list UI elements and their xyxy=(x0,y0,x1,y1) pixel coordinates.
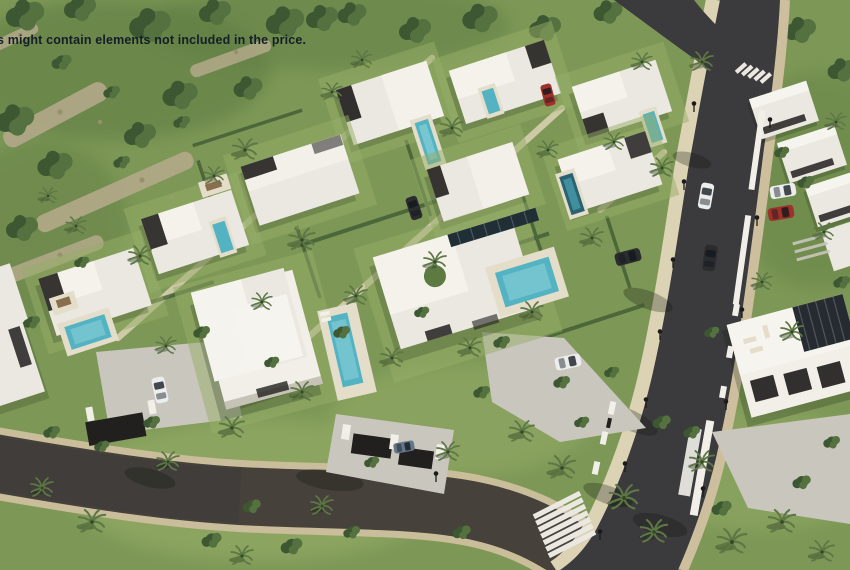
price-disclaimer-text: s might contain elements not included in… xyxy=(0,33,306,47)
render-canvas xyxy=(0,0,850,570)
aerial-development-render: s might contain elements not included in… xyxy=(0,0,850,570)
